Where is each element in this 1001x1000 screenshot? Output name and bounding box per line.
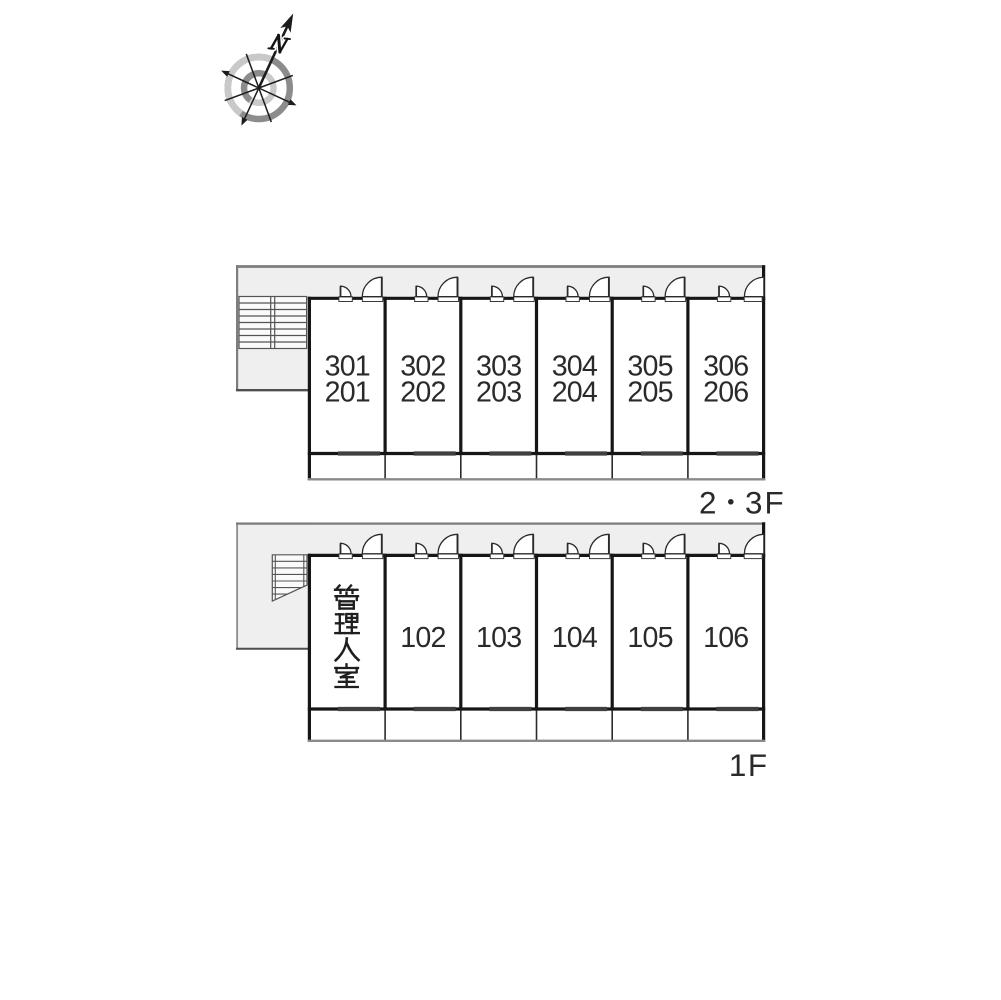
- svg-text:106: 106: [703, 622, 748, 654]
- svg-text:205: 205: [627, 376, 672, 408]
- svg-text:204: 204: [552, 376, 598, 408]
- svg-text:206: 206: [703, 376, 748, 408]
- svg-text:1F: 1F: [729, 748, 769, 783]
- svg-text:103: 103: [476, 622, 521, 654]
- svg-text:3F: 3F: [745, 485, 786, 520]
- svg-text:203: 203: [476, 376, 521, 408]
- svg-text:102: 102: [400, 622, 445, 654]
- svg-text:105: 105: [627, 622, 672, 654]
- svg-text:201: 201: [325, 376, 370, 408]
- svg-text:2: 2: [699, 485, 716, 520]
- svg-text:202: 202: [400, 376, 445, 408]
- svg-text:104: 104: [552, 622, 598, 654]
